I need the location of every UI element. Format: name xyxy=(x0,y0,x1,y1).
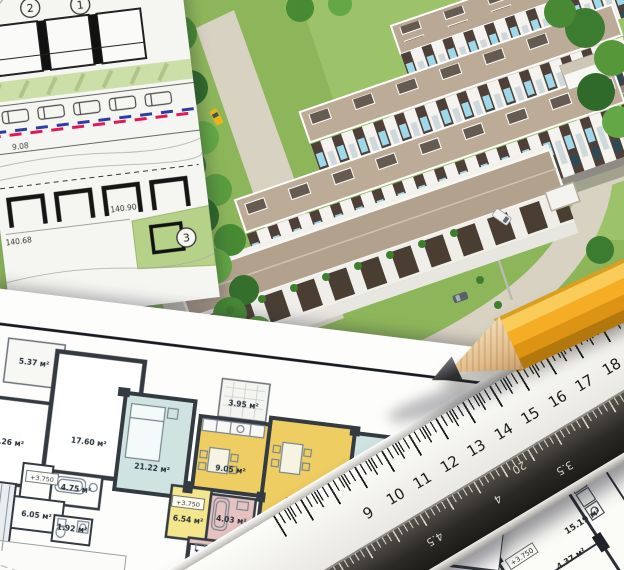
ruler-number: 9 xyxy=(353,499,383,527)
svg-text:1: 1 xyxy=(76,0,85,12)
svg-text:2: 2 xyxy=(26,1,35,15)
ruler-number: 15 xyxy=(515,402,545,430)
pencil-graphite-tip xyxy=(426,357,462,392)
svg-text:3: 3 xyxy=(182,231,191,245)
bevel-number: 4.5 xyxy=(424,529,446,549)
site-plan-drawing: 2 1 xyxy=(0,0,220,322)
bevel-number: 3.5 xyxy=(554,458,576,478)
bevel-number: 4 xyxy=(491,491,504,506)
table-icon xyxy=(280,442,304,474)
ruler-number: 14 xyxy=(489,418,519,446)
ruler-number: 18 xyxy=(597,353,624,381)
ruler-number: 10 xyxy=(381,483,411,511)
ruler-number: 17 xyxy=(569,369,599,397)
site-plan-sheet: 2 1 xyxy=(0,0,220,322)
ruler-number: 16 xyxy=(543,385,573,413)
bed-icon xyxy=(125,404,165,462)
ruler-number: 13 xyxy=(461,434,491,462)
ruler-number: 12 xyxy=(435,450,465,478)
photo-scene: 2 1 xyxy=(0,0,624,570)
ruler-number: 11 xyxy=(407,467,437,495)
